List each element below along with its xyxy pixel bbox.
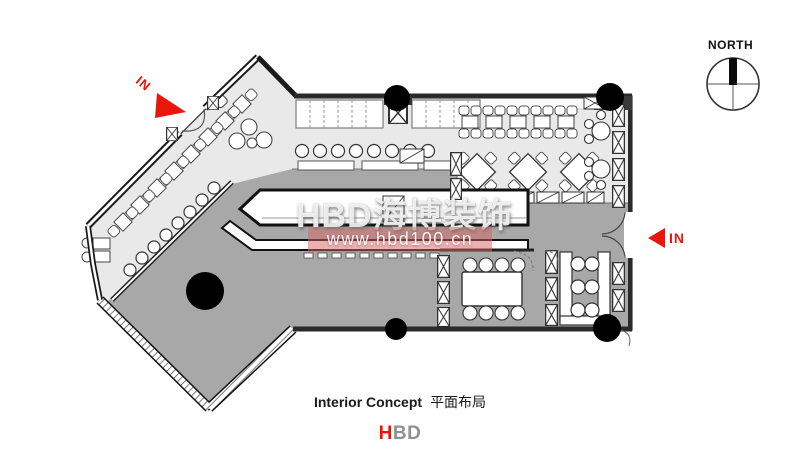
in-label-right: IN bbox=[669, 230, 685, 246]
right-wall-mullions bbox=[613, 105, 625, 312]
corner-door-swing bbox=[620, 330, 630, 346]
logo-h: H bbox=[379, 423, 393, 444]
hbd-logo: HBD bbox=[0, 423, 800, 445]
plan-caption: Interior Concept平面布局 bbox=[0, 392, 800, 412]
in-arrow-right bbox=[648, 228, 665, 248]
watermark-url: www.hbd100.cn bbox=[327, 229, 474, 250]
screenshot-canvas: NORTH IN IN HBD海博装饰 www.hbd100.cn Interi… bbox=[0, 0, 800, 450]
north-label: NORTH bbox=[708, 38, 768, 52]
caption-en: Interior Concept bbox=[314, 394, 422, 410]
stool-room bbox=[545, 251, 610, 326]
compass-needle bbox=[729, 58, 737, 85]
logo-bd: BD bbox=[393, 423, 421, 444]
compass bbox=[707, 58, 759, 110]
in-arrow-left bbox=[155, 93, 186, 118]
caption-zh: 平面布局 bbox=[430, 396, 486, 411]
watermark-band: www.hbd100.cn bbox=[308, 227, 492, 252]
